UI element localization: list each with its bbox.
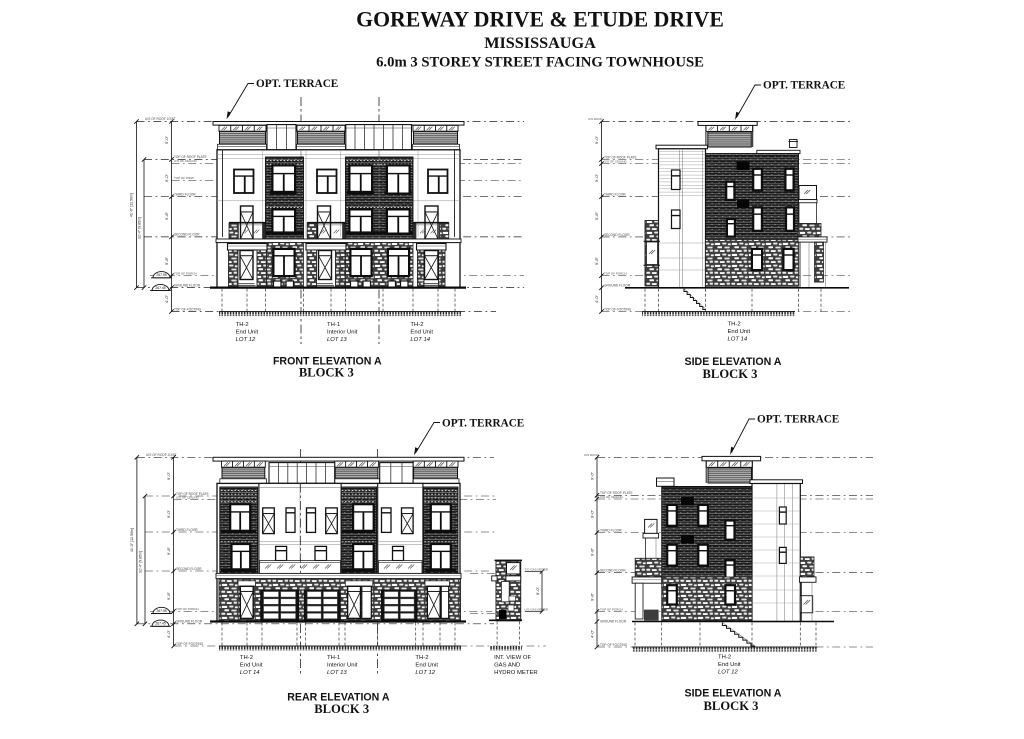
- svg-text:GROUND FLOOR: GROUND FLOOR: [600, 620, 627, 624]
- svg-text:LOT 12: LOT 12: [415, 670, 435, 676]
- svg-text:9'-8": 9'-8": [594, 211, 599, 220]
- svg-text:MISSISSAUGA: MISSISSAUGA: [484, 34, 596, 52]
- svg-text:9'-8": 9'-8": [590, 547, 595, 556]
- svg-text:9'-0": 9'-0": [590, 471, 595, 480]
- svg-text:End Unit: End Unit: [728, 329, 751, 335]
- svg-text:LOT 14: LOT 14: [728, 336, 748, 342]
- svg-text:267.45: 267.45: [155, 622, 165, 626]
- svg-text:OPT. TERRACE: OPT. TERRACE: [757, 414, 839, 426]
- svg-text:U/S ROOF: U/S ROOF: [588, 117, 603, 121]
- svg-text:32'-4" [9.85m]: 32'-4" [9.85m]: [138, 217, 142, 239]
- svg-text:9'-0": 9'-0": [594, 173, 599, 182]
- svg-text:End Unit: End Unit: [415, 662, 438, 668]
- svg-text:INT. VIEW OF: INT. VIEW OF: [494, 655, 531, 661]
- svg-text:TOP OF FOOTING: TOP OF FOOTING: [176, 642, 204, 646]
- svg-text:OPT. TERRACE: OPT. TERRACE: [256, 78, 338, 90]
- svg-text:TOP OF WDW: TOP OF WDW: [174, 176, 194, 180]
- svg-text:9'-0": 9'-0": [594, 135, 599, 144]
- svg-text:End Unit: End Unit: [718, 662, 741, 668]
- svg-text:BLOCK 3: BLOCK 3: [314, 702, 369, 716]
- svg-text:GAS AND: GAS AND: [494, 662, 520, 668]
- svg-text:41'-0" [12.50m]: 41'-0" [12.50m]: [130, 193, 134, 217]
- svg-text:TH-2: TH-2: [728, 321, 741, 327]
- svg-text:GROUND FLOOR: GROUND FLOOR: [174, 283, 201, 287]
- svg-text:U/S GAS METER: U/S GAS METER: [525, 608, 549, 612]
- svg-text:TOP OF FOOTING: TOP OF FOOTING: [600, 643, 628, 647]
- svg-text:TOP OF PORCH: TOP OF PORCH: [174, 271, 197, 275]
- svg-text:TOP OF PORCH: TOP OF PORCH: [600, 607, 623, 611]
- svg-text:TH-2: TH-2: [410, 322, 423, 328]
- svg-text:End Unit: End Unit: [240, 662, 263, 668]
- svg-text:9'-8": 9'-8": [164, 211, 169, 220]
- svg-text:U/S OF ROOF JOIST: U/S OF ROOF JOIST: [145, 117, 176, 121]
- svg-text:THIRD FLOOR: THIRD FLOOR: [176, 528, 198, 532]
- svg-text:9'-8": 9'-8": [166, 546, 171, 555]
- svg-text:TH-1: TH-1: [327, 322, 340, 328]
- svg-text:THIRD FLOOR: THIRD FLOOR: [174, 193, 196, 197]
- svg-text:U/S OF CEILING: U/S OF CEILING: [176, 496, 200, 500]
- svg-text:TH-1: TH-1: [327, 655, 340, 661]
- svg-text:U/S OF ROOF JOIST: U/S OF ROOF JOIST: [146, 453, 177, 457]
- svg-text:9'-0": 9'-0": [164, 135, 169, 144]
- svg-text:9'-0": 9'-0": [166, 471, 171, 480]
- svg-text:TOP OF FOOTING: TOP OF FOOTING: [604, 307, 632, 311]
- svg-text:9'-8": 9'-8": [590, 592, 595, 601]
- svg-text:TOP OF PORCH: TOP OF PORCH: [604, 272, 627, 276]
- svg-text:U/S OF CEILING: U/S OF CEILING: [600, 495, 624, 499]
- svg-text:6.0m 3 STOREY STREET FACING TO: 6.0m 3 STOREY STREET FACING TOWNHOUSE: [376, 55, 704, 71]
- svg-text:32'-4" [9.85m]: 32'-4" [9.85m]: [139, 551, 143, 573]
- svg-text:U/S ROOF: U/S ROOF: [584, 453, 599, 457]
- svg-text:TH-2: TH-2: [240, 655, 253, 661]
- svg-text:THIRD FLOOR: THIRD FLOOR: [604, 193, 626, 197]
- svg-text:LOT 13: LOT 13: [327, 670, 347, 676]
- svg-text:TOP OF PORCH: TOP OF PORCH: [176, 607, 199, 611]
- svg-text:T/O GAS METER: T/O GAS METER: [525, 568, 549, 572]
- svg-text:THIRD FLOOR: THIRD FLOOR: [600, 528, 622, 532]
- svg-text:9'-0": 9'-0": [590, 509, 595, 518]
- svg-text:OPT. TERRACE: OPT. TERRACE: [763, 80, 845, 92]
- svg-text:TH-2: TH-2: [415, 655, 428, 661]
- svg-text:4'-0": 4'-0": [590, 629, 595, 638]
- svg-text:267.95: 267.95: [156, 609, 166, 613]
- svg-text:LOT 12: LOT 12: [718, 669, 738, 675]
- svg-text:TOP OF FOOTING: TOP OF FOOTING: [174, 307, 202, 311]
- svg-text:SECOND FLOOR: SECOND FLOOR: [600, 569, 626, 573]
- svg-text:9'-8": 9'-8": [164, 256, 169, 265]
- svg-text:LOT 13: LOT 13: [327, 337, 347, 343]
- svg-text:LOT 14: LOT 14: [410, 337, 430, 343]
- svg-text:HYDRO METER: HYDRO METER: [494, 670, 538, 676]
- svg-text:TH-2: TH-2: [236, 322, 249, 328]
- svg-text:4'-0": 4'-0": [164, 294, 169, 303]
- svg-text:4'-0": 4'-0": [166, 629, 171, 638]
- svg-text:9'-0": 9'-0": [166, 509, 171, 518]
- svg-text:SECOND FLOOR: SECOND FLOOR: [604, 233, 630, 237]
- svg-text:SECOND FLOOR: SECOND FLOOR: [176, 567, 202, 571]
- svg-text:GOREWAY DRIVE & ETUDE DRIVE: GOREWAY DRIVE & ETUDE DRIVE: [356, 8, 724, 32]
- svg-text:267.95: 267.95: [156, 273, 166, 277]
- svg-text:LOT 12: LOT 12: [236, 337, 256, 343]
- svg-text:8'-0": 8'-0": [535, 586, 540, 595]
- svg-text:OPT. TERRACE: OPT. TERRACE: [442, 418, 524, 430]
- svg-text:End Unit: End Unit: [236, 329, 259, 335]
- svg-text:SECOND FLOOR: SECOND FLOOR: [174, 233, 200, 237]
- svg-text:U/S OF CEILING: U/S OF CEILING: [604, 160, 628, 164]
- svg-text:SIDE ELEVATION A: SIDE ELEVATION A: [685, 687, 782, 699]
- svg-text:GROUND FLOOR: GROUND FLOOR: [176, 620, 203, 624]
- svg-text:41'-0" [12.50m]: 41'-0" [12.50m]: [130, 528, 134, 552]
- svg-text:9'-0": 9'-0": [164, 173, 169, 182]
- svg-text:U/S OF CEILING: U/S OF CEILING: [174, 159, 198, 163]
- svg-text:267.45: 267.45: [155, 286, 165, 290]
- svg-text:BLOCK 3: BLOCK 3: [703, 367, 758, 381]
- svg-text:4'-0": 4'-0": [594, 294, 599, 303]
- svg-text:BLOCK 3: BLOCK 3: [704, 699, 759, 713]
- svg-text:9'-8": 9'-8": [166, 591, 171, 600]
- svg-text:End Unit: End Unit: [410, 329, 433, 335]
- svg-text:LOT 14: LOT 14: [240, 670, 260, 676]
- svg-text:9'-8": 9'-8": [594, 256, 599, 265]
- svg-text:BLOCK 3: BLOCK 3: [299, 366, 354, 380]
- svg-text:Interior Unit: Interior Unit: [327, 329, 358, 335]
- svg-text:Interior Unit: Interior Unit: [327, 662, 358, 668]
- svg-text:TH-2: TH-2: [718, 654, 731, 660]
